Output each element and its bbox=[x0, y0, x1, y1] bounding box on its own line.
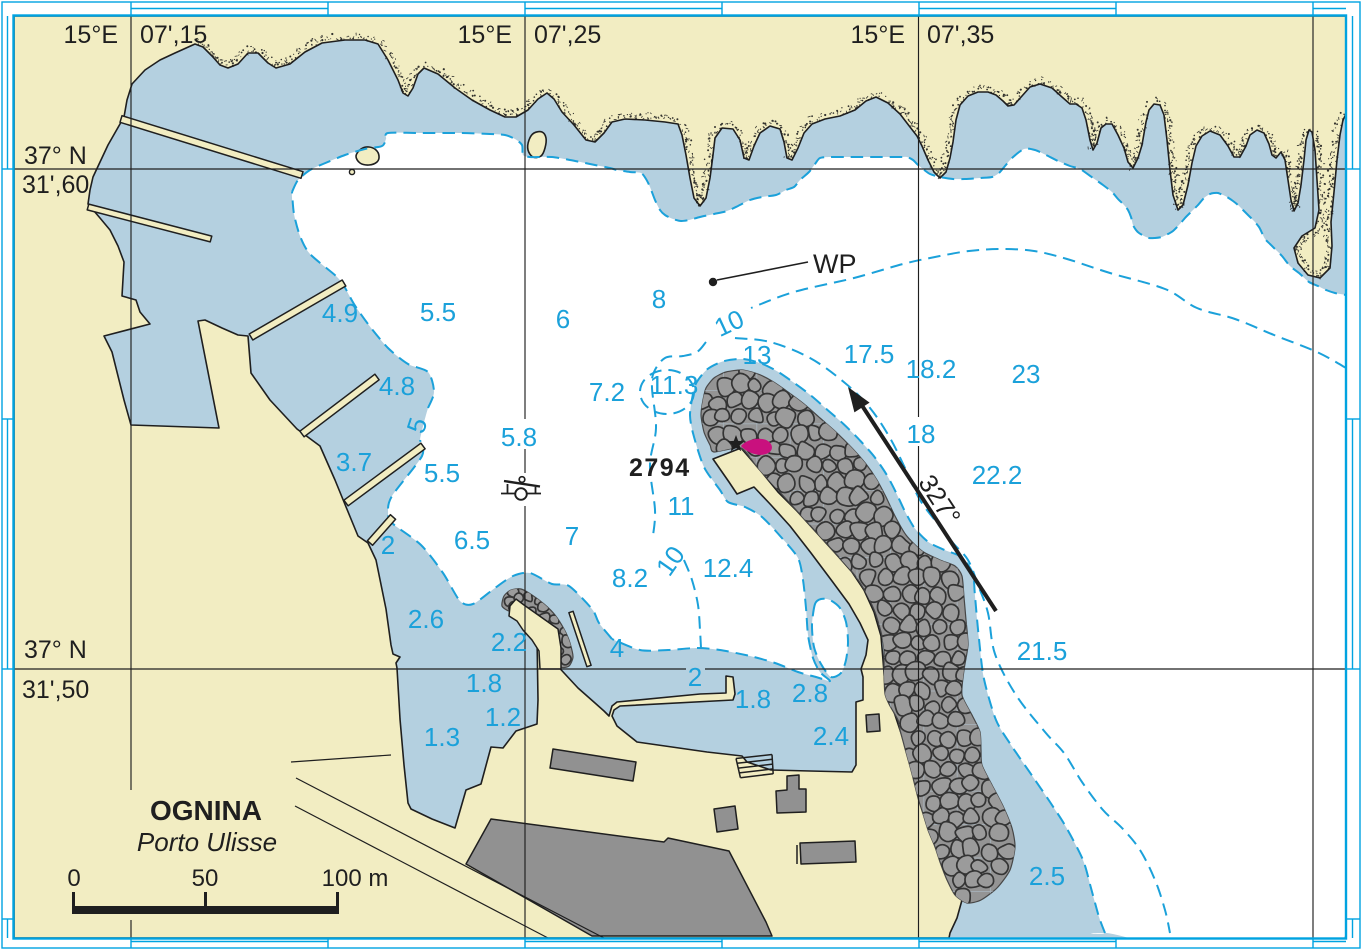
svg-text:07',15: 07',15 bbox=[140, 21, 207, 49]
svg-text:11: 11 bbox=[668, 491, 695, 521]
svg-text:15°E: 15°E bbox=[851, 21, 905, 49]
svg-text:WP: WP bbox=[813, 249, 857, 279]
svg-text:2: 2 bbox=[688, 662, 702, 692]
svg-text:37° N: 37° N bbox=[24, 142, 87, 170]
svg-text:5.5: 5.5 bbox=[424, 458, 460, 488]
svg-text:1.8: 1.8 bbox=[466, 668, 502, 698]
svg-text:4.9: 4.9 bbox=[322, 298, 358, 328]
svg-text:5.5: 5.5 bbox=[420, 297, 456, 327]
svg-text:2.2: 2.2 bbox=[491, 627, 527, 657]
svg-text:11.3: 11.3 bbox=[650, 370, 699, 400]
svg-text:15°E: 15°E bbox=[458, 21, 512, 49]
svg-text:17.5: 17.5 bbox=[844, 339, 895, 369]
svg-text:21.5: 21.5 bbox=[1017, 636, 1068, 666]
svg-text:07',35: 07',35 bbox=[927, 21, 994, 49]
svg-text:13: 13 bbox=[743, 340, 772, 370]
svg-text:12.4: 12.4 bbox=[703, 553, 754, 583]
svg-text:2.6: 2.6 bbox=[408, 604, 444, 634]
svg-text:7.2: 7.2 bbox=[589, 377, 625, 407]
svg-text:18: 18 bbox=[907, 419, 936, 449]
svg-text:2794: 2794 bbox=[629, 454, 691, 482]
svg-text:100 m: 100 m bbox=[322, 865, 389, 892]
svg-text:37° N: 37° N bbox=[24, 636, 87, 664]
svg-text:4: 4 bbox=[610, 633, 624, 663]
svg-text:6.5: 6.5 bbox=[454, 525, 490, 555]
svg-text:31',50: 31',50 bbox=[22, 676, 89, 704]
svg-text:18.2: 18.2 bbox=[906, 354, 957, 384]
svg-text:1.3: 1.3 bbox=[424, 722, 460, 752]
svg-text:0: 0 bbox=[67, 865, 80, 892]
svg-text:5.8: 5.8 bbox=[501, 422, 537, 452]
svg-text:3.7: 3.7 bbox=[336, 447, 372, 477]
svg-text:31',60: 31',60 bbox=[22, 171, 89, 199]
svg-text:OGNINA: OGNINA bbox=[150, 795, 262, 826]
svg-text:6: 6 bbox=[556, 304, 570, 334]
svg-text:2: 2 bbox=[381, 530, 395, 560]
svg-text:07',25: 07',25 bbox=[534, 21, 601, 49]
svg-text:Porto Ulisse: Porto Ulisse bbox=[137, 827, 277, 857]
svg-text:2.8: 2.8 bbox=[792, 678, 828, 708]
svg-text:50: 50 bbox=[192, 865, 219, 892]
svg-text:2.4: 2.4 bbox=[813, 721, 849, 751]
svg-text:7: 7 bbox=[565, 521, 579, 551]
svg-text:8.2: 8.2 bbox=[612, 563, 648, 593]
svg-text:1.2: 1.2 bbox=[485, 702, 521, 732]
svg-text:23: 23 bbox=[1012, 359, 1041, 389]
svg-text:1.8: 1.8 bbox=[735, 684, 771, 714]
svg-text:22.2: 22.2 bbox=[972, 460, 1023, 490]
svg-text:2.5: 2.5 bbox=[1029, 861, 1065, 891]
svg-text:4.8: 4.8 bbox=[379, 371, 415, 401]
svg-text:8: 8 bbox=[652, 284, 666, 314]
svg-text:15°E: 15°E bbox=[64, 21, 118, 49]
